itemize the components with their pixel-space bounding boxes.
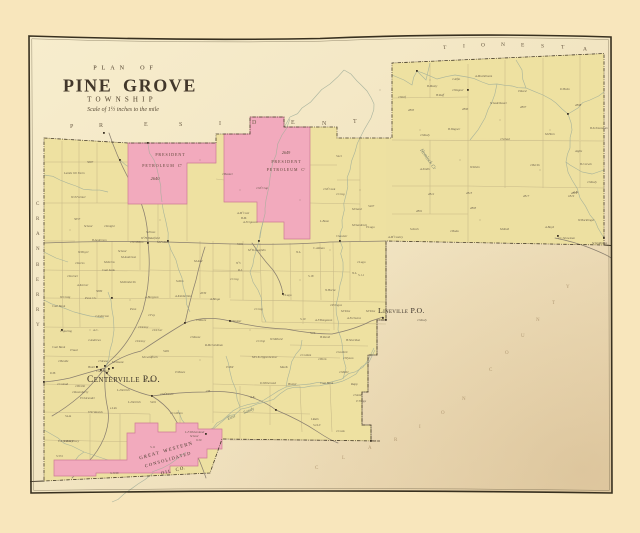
- svg-text:A.N.Owens: A.N.Owens: [346, 316, 362, 320]
- svg-text:5.1.1: 5.1.1: [358, 273, 365, 277]
- svg-text:J.Slease: J.Slease: [98, 359, 109, 363]
- svg-text:J.Anderson: J.Anderson: [95, 314, 109, 318]
- svg-text:J.W.Milton: J.W.Milton: [130, 240, 144, 244]
- svg-text:O.W.: O.W.: [196, 438, 202, 442]
- svg-text:2812: 2812: [428, 192, 435, 196]
- svg-text:M.Sand: M.Sand: [351, 207, 362, 211]
- svg-text:T.Yantzer: T.Yantzer: [230, 319, 242, 323]
- svg-text:C.Altman: C.Altman: [313, 246, 325, 250]
- svg-text:PINE GROVE: PINE GROVE: [63, 76, 197, 96]
- svg-text:Hunter: Hunter: [287, 382, 298, 386]
- svg-text:J.Miller: J.Miller: [339, 370, 350, 374]
- svg-text:J.MºCook: J.MºCook: [323, 187, 336, 191]
- svg-text:R: R: [99, 123, 103, 129]
- svg-text:Rapp: Rapp: [350, 382, 358, 386]
- svg-text:Coal Bank: Coal Bank: [320, 381, 334, 385]
- svg-text:P E T R O L E U M Cº: P E T R O L E U M Cº: [142, 163, 182, 168]
- svg-text:N: N: [501, 42, 505, 48]
- svg-text:N: N: [36, 247, 40, 252]
- svg-text:T.Mill: T.Mill: [226, 365, 234, 369]
- svg-text:V.W.Vansick: V.W.Vansick: [88, 410, 103, 414]
- svg-text:Y: Y: [36, 323, 40, 328]
- svg-text:5689: 5689: [96, 289, 103, 293]
- svg-text:J.Crag: J.Crag: [230, 277, 239, 281]
- svg-text:5.11: 5.11: [150, 445, 156, 449]
- svg-text:M.Sloane: M.Sloane: [111, 360, 124, 364]
- svg-text:B.Schmondam: B.Schmondam: [590, 126, 609, 130]
- svg-text:J.Beaker: J.Beaker: [222, 172, 234, 176]
- svg-text:J.Fay: J.Fay: [148, 313, 156, 317]
- svg-text:5491: 5491: [150, 400, 157, 404]
- svg-text:J.Knight: J.Knight: [104, 224, 115, 228]
- svg-text:J.Cullam: J.Cullam: [300, 353, 312, 357]
- svg-text:Mrs.K.Oppenheimer: Mrs.K.Oppenheimer: [251, 355, 278, 359]
- svg-text:A.Mushbloom: A.Mushbloom: [474, 74, 493, 78]
- svg-text:A.MºCool: A.MºCool: [236, 211, 249, 215]
- svg-text:J.Schad: J.Schad: [500, 137, 510, 141]
- svg-text:J.Smith: J.Smith: [353, 393, 363, 397]
- svg-text:R.McCaldman: R.McCaldman: [204, 343, 223, 347]
- svg-text:H.Sheridan: H.Sheridan: [345, 338, 361, 342]
- svg-text:5.LL0: 5.LL0: [313, 423, 321, 427]
- svg-text:N: N: [536, 318, 540, 323]
- svg-text:T.Moses: T.Moses: [175, 370, 186, 374]
- svg-text:Coal Bank: Coal Bank: [52, 345, 66, 349]
- svg-text:J.Driver: J.Driver: [152, 328, 163, 332]
- svg-text:5.18: 5.18: [308, 274, 314, 278]
- svg-text:MºW.Loughlin: MºW.Loughlin: [247, 248, 266, 252]
- svg-text:M.Goldfinch: M.Goldfinch: [141, 355, 158, 359]
- svg-text:2806: 2806: [462, 107, 469, 111]
- svg-text:Scale of 1½ inches to the mile: Scale of 1½ inches to the mile: [87, 106, 159, 113]
- svg-text:T.Reed: T.Reed: [518, 89, 527, 93]
- svg-text:S.Prass: S.Prass: [146, 230, 156, 234]
- svg-text:O: O: [441, 411, 445, 416]
- svg-text:J.Wagner: J.Wagner: [452, 88, 464, 92]
- svg-text:J.Heck: J.Heck: [318, 357, 327, 361]
- svg-text:B.Anderson: B.Anderson: [92, 238, 107, 242]
- svg-text:A.F.Bongason: A.F.Bongason: [314, 318, 333, 322]
- svg-text:5.531: 5.531: [56, 454, 63, 458]
- svg-text:5687: 5687: [87, 160, 94, 164]
- svg-text:J.Moore: J.Moore: [196, 318, 207, 322]
- svg-text:M.Horn: M.Horn: [544, 132, 555, 136]
- svg-text:J.C.Showman: J.C.Showman: [558, 236, 575, 240]
- svg-text:Lambs Oil Farm: Lambs Oil Farm: [63, 171, 85, 175]
- svg-text:2803: 2803: [470, 206, 477, 210]
- svg-text:A.Ferguson: A.Ferguson: [242, 220, 258, 224]
- svg-text:J.Mealy: J.Mealy: [587, 180, 598, 184]
- svg-text:Coal Bank: Coal Bank: [52, 304, 66, 308]
- svg-text:J.Lago: J.Lago: [357, 260, 366, 264]
- svg-text:M.And: M.And: [193, 259, 203, 263]
- svg-text:s.Lilo: s.Lilo: [110, 406, 117, 410]
- svg-text:A.Smith: A.Smith: [419, 167, 430, 171]
- svg-text:L.Dietrich: L.Dietrich: [116, 388, 130, 392]
- svg-text:B.Wagner: B.Wagner: [448, 127, 461, 131]
- svg-text:J.Beside: J.Beside: [58, 359, 69, 363]
- svg-text:2807: 2807: [520, 105, 527, 109]
- svg-text:H.Ruff: H.Ruff: [435, 93, 445, 97]
- svg-text:Schadelbauer: Schadelbauer: [490, 101, 508, 105]
- svg-text:M.Wise: M.Wise: [340, 309, 351, 313]
- svg-text:2639: 2639: [200, 291, 207, 295]
- svg-text:J.Korner: J.Korner: [67, 274, 79, 278]
- svg-text:D.Hahn: D.Hahn: [559, 87, 570, 91]
- svg-text:5.LL: 5.LL: [310, 331, 316, 335]
- svg-text:T: T: [353, 119, 357, 125]
- svg-text:J.Alfio: J.Alfio: [452, 77, 461, 81]
- svg-text:J.Berlin: J.Berlin: [530, 163, 540, 167]
- svg-text:J.Kerns: J.Kerns: [75, 261, 85, 265]
- svg-text:J.Rosenberry: J.Rosenberry: [72, 390, 89, 394]
- svg-text:M.Ruth: M.Ruth: [499, 227, 510, 231]
- svg-text:J.Crap: J.Crap: [254, 307, 263, 311]
- svg-text:5411: 5411: [336, 154, 342, 158]
- svg-text:T: T: [552, 301, 555, 306]
- svg-text:M.Wise: M.Wise: [365, 309, 376, 313]
- svg-text:J.Moose: J.Moose: [190, 335, 201, 339]
- svg-text:A.K.: A.K.: [249, 395, 256, 399]
- svg-text:School: School: [84, 224, 93, 228]
- svg-text:J.Comad: J.Comad: [57, 382, 69, 386]
- svg-text:5444: 5444: [65, 414, 72, 418]
- svg-text:J.Crag: J.Crag: [336, 192, 345, 196]
- svg-text:E: E: [144, 122, 148, 128]
- svg-text:School: School: [118, 249, 127, 253]
- svg-text:E: E: [36, 278, 39, 283]
- svg-text:N: N: [462, 397, 466, 402]
- svg-text:W.Klein: W.Klein: [470, 165, 480, 169]
- svg-text:J.Mealy: J.Mealy: [417, 318, 428, 322]
- svg-text:T.Saal: T.Saal: [70, 348, 78, 352]
- svg-text:M.Kerns: M.Kerns: [103, 260, 116, 264]
- svg-text:5657: 5657: [74, 217, 81, 221]
- svg-text:5407: 5407: [368, 204, 375, 208]
- svg-text:J.Crisp: J.Crisp: [256, 339, 265, 343]
- svg-text:A.Kerner: A.Kerner: [76, 283, 89, 287]
- svg-text:Penn Ch.: Penn Ch.: [84, 296, 97, 300]
- svg-text:2813: 2813: [466, 191, 473, 195]
- svg-text:J.Wolf: J.Wolf: [398, 95, 407, 99]
- svg-text:S: S: [179, 122, 182, 128]
- svg-text:5481: 5481: [163, 349, 170, 353]
- svg-text:A.Burgoon: A.Burgoon: [144, 295, 159, 299]
- svg-text:J.Mealy: J.Mealy: [420, 133, 431, 137]
- svg-text:J.Denny: J.Denny: [135, 339, 146, 343]
- svg-text:H.Miller: H.Miller: [144, 379, 157, 383]
- svg-text:A.Binga: A.Binga: [209, 297, 221, 301]
- svg-text:Schmidtman: Schmidtman: [592, 241, 608, 245]
- svg-text:F.Ostrander: F.Ostrander: [79, 396, 96, 400]
- svg-text:J.MºKinzie: J.MºKinzie: [160, 392, 174, 396]
- svg-text:A.Kimberline: A.Kimberline: [174, 294, 192, 298]
- svg-text:A: A: [36, 232, 40, 237]
- svg-text:L: L: [342, 456, 345, 461]
- svg-text:I: I: [463, 44, 465, 50]
- svg-text:I: I: [219, 121, 221, 127]
- svg-text:Penn: Penn: [129, 307, 137, 311]
- svg-text:B.Mealy: B.Mealy: [427, 84, 438, 88]
- svg-text:J.Guthrie: J.Guthrie: [336, 350, 348, 354]
- svg-text:G.W.H.: G.W.H.: [110, 471, 119, 475]
- svg-text:W.Craig: W.Craig: [60, 295, 71, 299]
- svg-text:A: A: [368, 446, 372, 451]
- svg-text:W.Millard: W.Millard: [270, 337, 283, 341]
- svg-text:L.Boon: L.Boon: [319, 219, 329, 223]
- svg-text:Nº5: Nº5: [235, 261, 241, 265]
- svg-text:J.Lago: J.Lago: [283, 293, 292, 297]
- svg-text:MacK.: MacK.: [279, 365, 289, 369]
- svg-text:T.Triggs: T.Triggs: [356, 399, 367, 403]
- svg-text:2808: 2808: [575, 103, 582, 107]
- svg-text:R.I.: R.I.: [237, 268, 243, 272]
- svg-text:2819: 2819: [571, 191, 578, 195]
- svg-text:A.MºCauley: A.MºCauley: [387, 235, 404, 239]
- svg-text:O: O: [505, 351, 509, 356]
- svg-text:A: A: [583, 47, 587, 53]
- svg-text:S: S: [541, 44, 544, 50]
- svg-text:P E T R O L E U M Cº: P E T R O L E U M Cº: [267, 168, 306, 172]
- svg-text:J.MºCrap: J.MºCrap: [256, 186, 268, 190]
- svg-text:2801: 2801: [416, 209, 423, 213]
- svg-text:M.Anderson: M.Anderson: [120, 255, 137, 259]
- svg-text:P R E S I D E N T: P R E S I D E N T: [155, 152, 185, 157]
- svg-text:Y: Y: [566, 285, 570, 290]
- svg-text:P R E S I D E N T: P R E S I D E N T: [271, 159, 301, 164]
- svg-text:L.Dietrich: L.Dietrich: [127, 400, 141, 404]
- svg-text:J.Cullison: J.Cullison: [170, 411, 183, 415]
- svg-text:W.Bucklinger: W.Bucklinger: [578, 218, 595, 222]
- svg-text:W.T.Farmer: W.T.Farmer: [71, 195, 87, 199]
- svg-text:Hotel: Hotel: [87, 365, 95, 369]
- svg-text:A.Boyd: A.Boyd: [544, 225, 554, 229]
- svg-text:A.C.: A.C.: [92, 328, 99, 332]
- svg-text:W.Hoyer: W.Hoyer: [78, 250, 90, 254]
- svg-text:2817: 2817: [523, 194, 530, 198]
- svg-text:PLAN OF: PLAN OF: [93, 65, 158, 72]
- svg-text:J.Wynon: J.Wynon: [343, 356, 354, 360]
- svg-text:N.L.: N.L.: [351, 271, 358, 275]
- svg-text:D: D: [252, 120, 257, 126]
- svg-text:M.Kimberlin: M.Kimberlin: [119, 280, 136, 284]
- svg-text:J.Boda: J.Boda: [450, 229, 459, 233]
- svg-text:N.L.: N.L.: [295, 250, 302, 254]
- svg-text:J.Denny: J.Denny: [138, 325, 149, 329]
- svg-text:Coal bank: Coal bank: [102, 268, 115, 272]
- svg-text:J.Pringos: J.Pringos: [330, 303, 343, 307]
- svg-text:TOWNSHIP: TOWNSHIP: [87, 96, 157, 104]
- svg-text:O: O: [481, 43, 485, 49]
- svg-text:B.Corwin: B.Corwin: [580, 162, 592, 166]
- svg-text:J.Cook: J.Cook: [336, 429, 345, 433]
- svg-text:Chautser: Chautser: [336, 234, 348, 238]
- svg-text:J.Heslin: J.Heslin: [75, 384, 86, 388]
- svg-text:D.Witherand: D.Witherand: [259, 381, 276, 385]
- svg-text:H.Renth: H.Renth: [319, 335, 331, 339]
- svg-text:5.19: 5.19: [300, 317, 306, 321]
- svg-text:J.B.: J.B.: [206, 389, 211, 393]
- svg-text:N: N: [322, 121, 327, 127]
- svg-text:2805: 2805: [408, 108, 415, 112]
- svg-text:N.Horne: N.Horne: [324, 288, 336, 292]
- svg-text:2640: 2640: [151, 176, 161, 181]
- svg-text:D.H.: D.H.: [49, 371, 56, 375]
- svg-text:Aiglis: Aiglis: [574, 149, 583, 153]
- svg-text:I.Rath: I.Rath: [310, 417, 319, 421]
- svg-text:S.Koch: S.Koch: [410, 227, 419, 231]
- svg-text:2649: 2649: [282, 150, 291, 155]
- svg-text:Y.&W.Posey: Y.&W.Posey: [58, 439, 74, 443]
- svg-text:F.Lago: F.Lago: [365, 225, 375, 229]
- svg-text:Lineville P.O.: Lineville P.O.: [378, 306, 425, 315]
- svg-text:J.Andrews: J.Andrews: [88, 338, 102, 342]
- svg-text:E: E: [291, 120, 295, 126]
- svg-text:5404: 5404: [237, 242, 244, 246]
- svg-text:U: U: [521, 334, 525, 339]
- svg-text:S.Kim: S.Kim: [176, 279, 184, 283]
